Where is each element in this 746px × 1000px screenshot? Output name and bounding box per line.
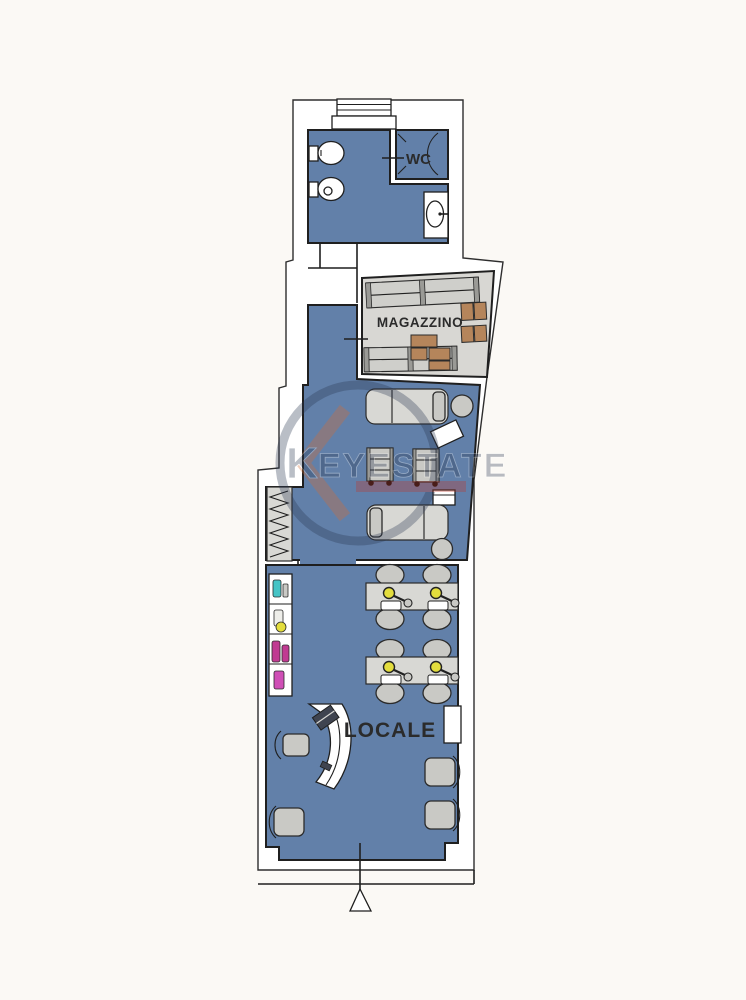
- window: [332, 99, 396, 129]
- armchair-right-1: [425, 756, 460, 788]
- chair: [423, 609, 451, 630]
- stool-1: [451, 395, 473, 417]
- armchair-left: [269, 806, 304, 838]
- floor-plan: WC MAGAZZINO: [0, 0, 746, 1000]
- chair: [423, 683, 451, 704]
- manicure-lamp-icon: [431, 662, 442, 673]
- wc-label: WC: [406, 151, 431, 168]
- watermark-text: EYESTATE: [318, 447, 508, 485]
- supply-box: [433, 490, 455, 505]
- armchair-right-2: [425, 799, 460, 831]
- floor-plan-page: WC MAGAZZINO: [0, 0, 746, 1000]
- manicure-lamp-icon: [431, 588, 442, 599]
- watermark-bar: [356, 481, 466, 492]
- magazzino-label: MAGAZZINO: [377, 315, 463, 330]
- wall-niche: [444, 706, 461, 743]
- entrance-arrow: [350, 889, 371, 911]
- chair: [376, 683, 404, 704]
- chair: [376, 609, 404, 630]
- stool-2: [432, 539, 453, 560]
- chair: [376, 565, 404, 586]
- sink-icon: [424, 192, 448, 238]
- product-shelf: [269, 574, 292, 696]
- manicure-lamp-icon: [384, 588, 395, 599]
- manicure-lamp-icon: [384, 662, 395, 673]
- chair: [423, 565, 451, 586]
- locale-label: LOCALE: [344, 719, 436, 742]
- watermark-letter: K: [286, 439, 320, 488]
